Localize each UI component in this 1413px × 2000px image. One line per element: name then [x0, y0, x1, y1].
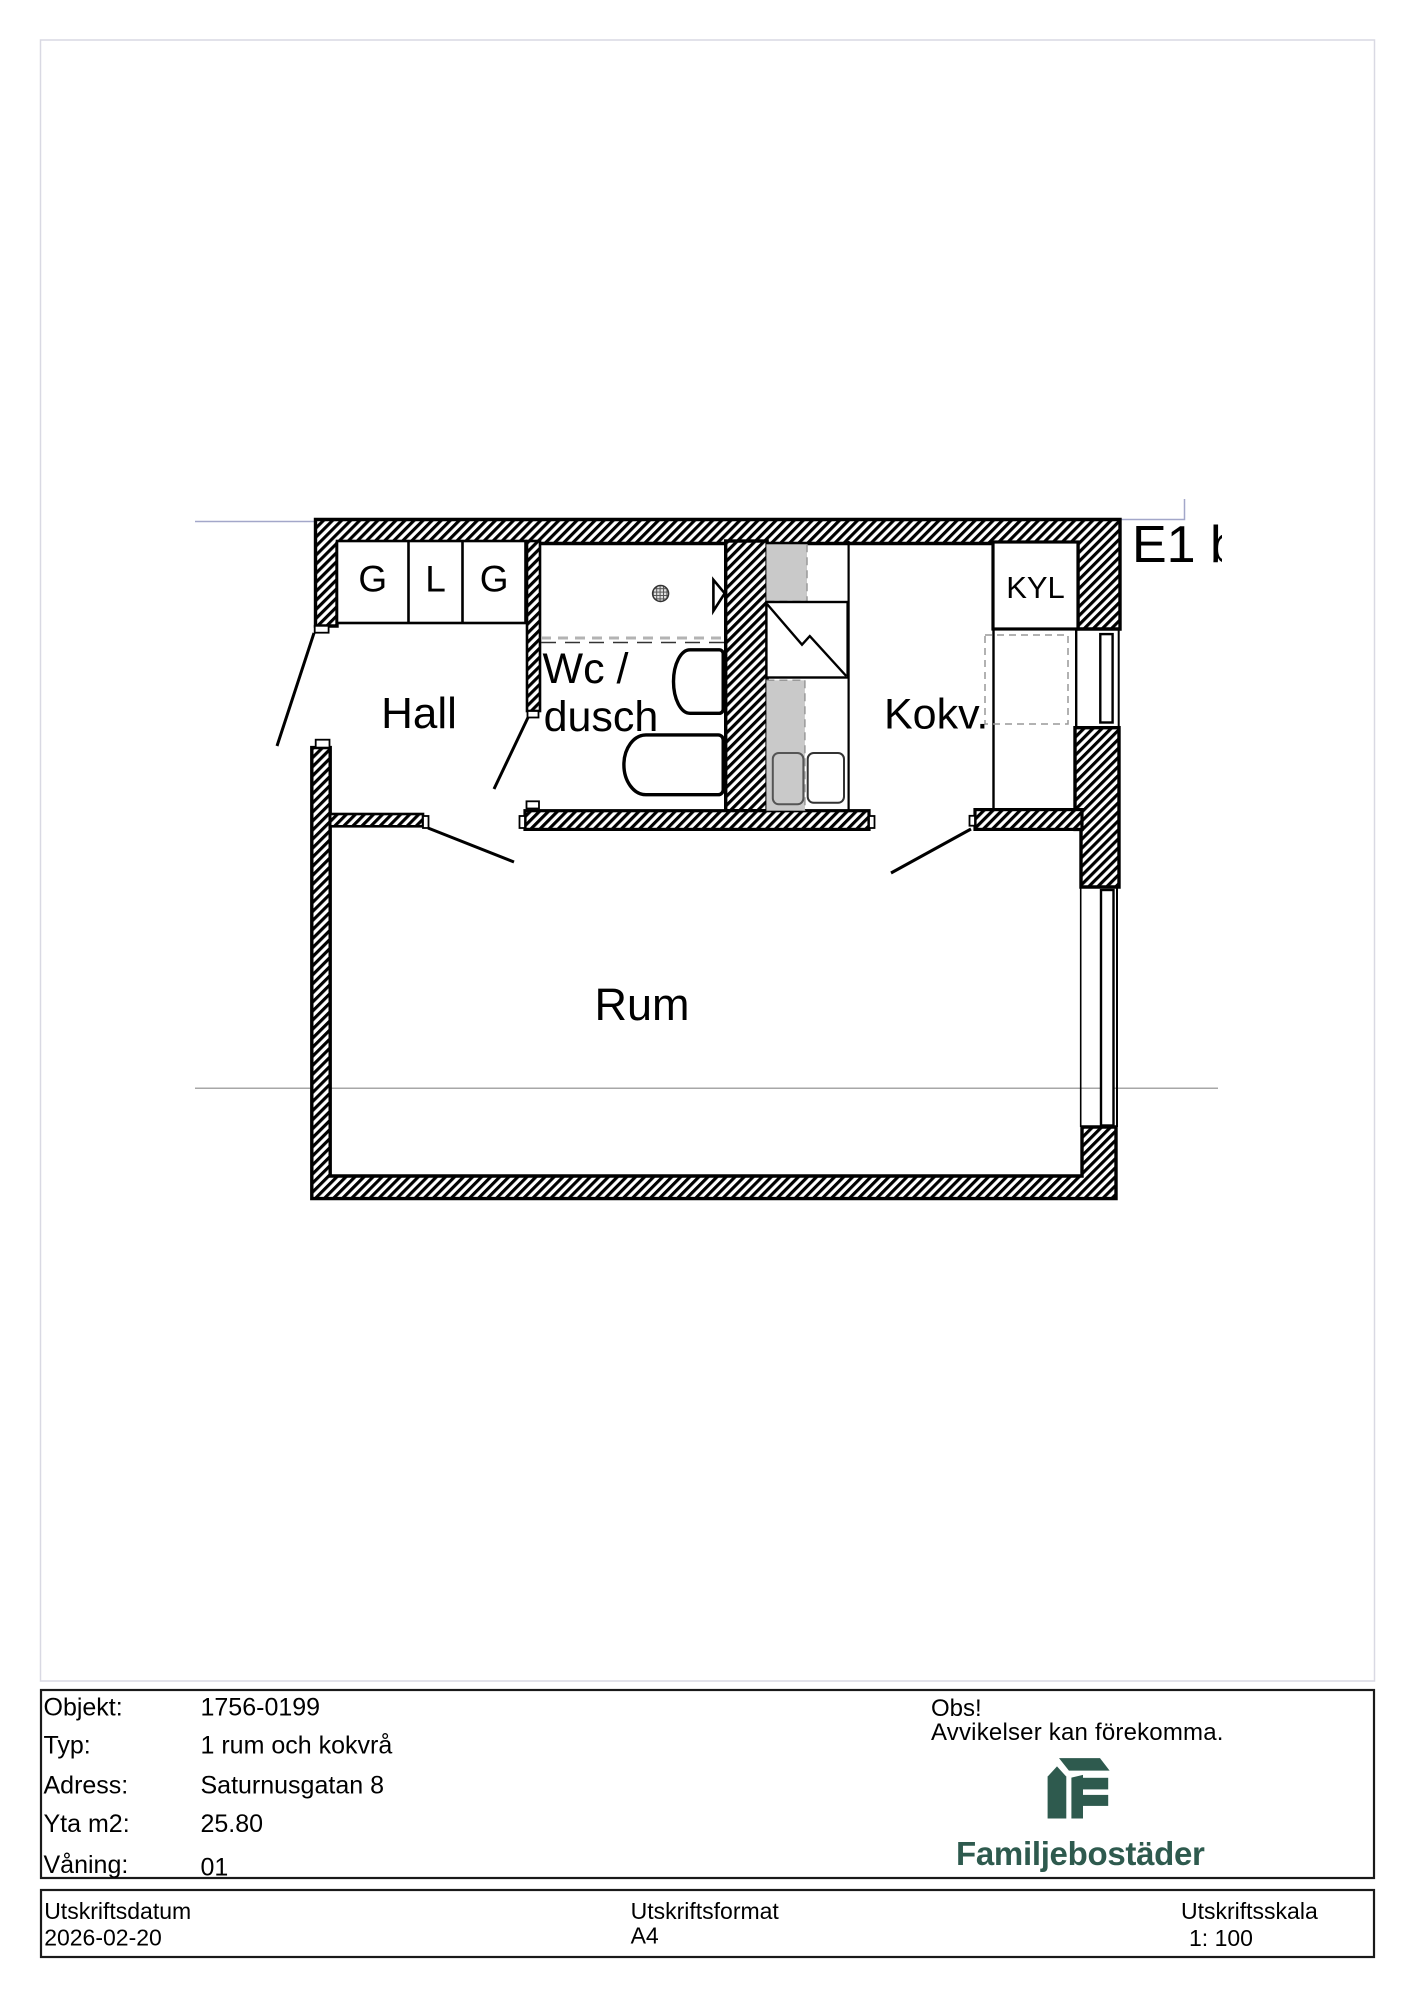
svg-text:Utskriftsformat: Utskriftsformat: [631, 1898, 780, 1924]
svg-text:Familjebostäder: Familjebostäder: [956, 1835, 1205, 1872]
svg-text:Våning:: Våning:: [44, 1851, 129, 1879]
svg-text:Typ:: Typ:: [44, 1732, 91, 1760]
svg-text:25.80: 25.80: [201, 1810, 264, 1838]
svg-text:KYL: KYL: [1006, 570, 1065, 605]
svg-text:Obs!: Obs!: [931, 1695, 982, 1722]
svg-text:Wc /: Wc /: [543, 645, 629, 693]
svg-text:G: G: [480, 559, 509, 600]
svg-text:Utskriftsdatum: Utskriftsdatum: [44, 1898, 191, 1924]
svg-text:G: G: [358, 559, 387, 600]
svg-text:01: 01: [201, 1854, 229, 1882]
svg-text:Yta m2:: Yta m2:: [44, 1810, 130, 1838]
svg-text:A4: A4: [631, 1923, 659, 1949]
svg-text:1756-0199: 1756-0199: [201, 1694, 321, 1722]
svg-text:Objekt:: Objekt:: [44, 1694, 123, 1722]
svg-text:1 rum och kokvrå: 1 rum och kokvrå: [201, 1732, 393, 1760]
svg-text:Adress:: Adress:: [44, 1771, 129, 1799]
svg-text:2026-02-20: 2026-02-20: [44, 1925, 162, 1951]
svg-text:dusch: dusch: [544, 693, 659, 741]
svg-text:Rum: Rum: [594, 979, 689, 1030]
svg-text:Saturnusgatan 8: Saturnusgatan 8: [201, 1771, 384, 1799]
svg-text:Avvikelser kan förekomma.: Avvikelser kan förekomma.: [931, 1719, 1224, 1746]
svg-text:Kokv.: Kokv.: [884, 690, 988, 738]
svg-text:1: 100: 1: 100: [1189, 1925, 1253, 1951]
svg-text:Hall: Hall: [381, 689, 457, 738]
svg-text:Utskriftsskala: Utskriftsskala: [1181, 1898, 1318, 1924]
svg-text:L: L: [425, 559, 446, 600]
